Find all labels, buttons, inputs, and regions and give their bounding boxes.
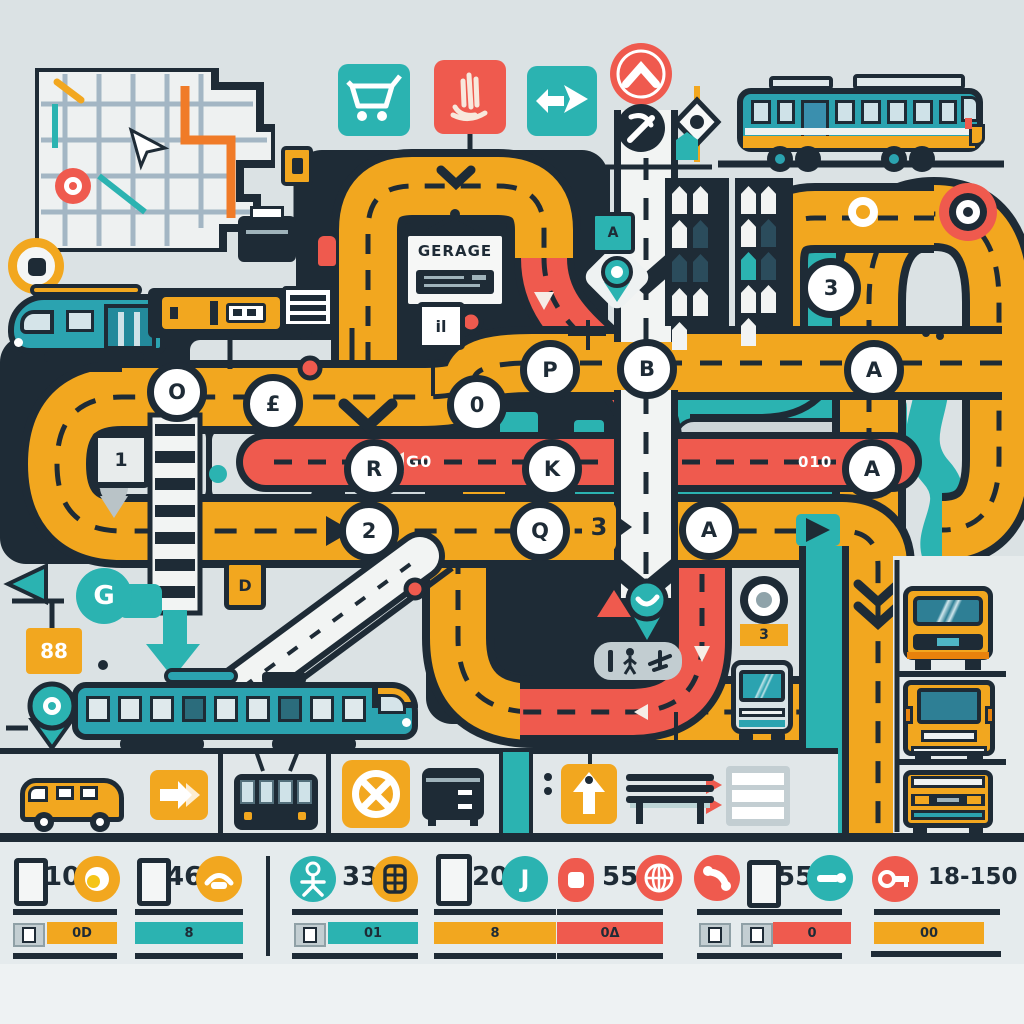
teal-square-text: A [608, 225, 619, 241]
station-marker: B [617, 339, 677, 399]
up-arrow-icon [561, 764, 617, 824]
pedestrian-sign [594, 642, 682, 680]
car-circle-icon [196, 856, 242, 902]
cabinet-icon [422, 768, 484, 826]
station-marker: Q [510, 501, 570, 561]
legend-bar: 8 [135, 922, 243, 944]
route-3-text: 3 [591, 513, 608, 541]
station-marker: A [842, 439, 902, 499]
truck-front [903, 586, 999, 672]
stripe-sign [282, 286, 334, 328]
mini-sign-icon [741, 923, 773, 947]
mini-sign-icon [294, 923, 326, 947]
g-badge: G [76, 568, 132, 624]
bus-pictogram [226, 303, 266, 323]
grid-circle-icon [372, 856, 418, 902]
printer-icon [238, 216, 296, 262]
station-marker: 3 [801, 258, 861, 318]
legend-bar-text: 8 [184, 926, 193, 941]
legend-bar: 00 [874, 922, 984, 944]
station-marker: K [522, 439, 582, 499]
double-arrow-tile [527, 66, 597, 136]
building [735, 178, 793, 326]
double-eight-text: 88 [40, 639, 68, 663]
stop-tag-text: 3 [759, 627, 769, 643]
up-arrow-sign [561, 764, 617, 824]
legend-bar-text: 0Δ [600, 926, 619, 941]
station-marker: 2 [339, 501, 399, 561]
stop-tag: 3 [740, 624, 788, 646]
info-sign-text: il [436, 317, 447, 336]
bench-icon [626, 774, 714, 824]
station-label: 3 [824, 276, 839, 300]
hand-tile [434, 60, 506, 134]
station-label: A [701, 518, 717, 542]
legend-bar: 0 [773, 922, 851, 944]
legend-bar-text: 0D [72, 926, 92, 941]
legend-bar-text: 8 [490, 926, 499, 941]
station-marker: A [679, 500, 739, 560]
station-label: B [639, 357, 655, 381]
shopping-cart-tile [338, 64, 410, 136]
shopping-cart-icon [344, 72, 404, 128]
garage-sign-text: GERAGE [408, 242, 502, 260]
garage-sign-panel [416, 270, 494, 294]
globe-circle-icon [636, 855, 682, 901]
station-label: O [168, 380, 186, 404]
hydrant-icon [318, 236, 336, 266]
crosswalk [146, 415, 200, 678]
right-arrow-sign [150, 770, 208, 820]
dot-circle-icon [74, 856, 120, 902]
teal-square-sign: A [591, 212, 635, 254]
no-entry-sign [342, 760, 410, 828]
hook-glyph: J [521, 865, 530, 893]
bus-front [731, 654, 797, 744]
station-label: 2 [362, 519, 377, 543]
person-circle-icon [290, 856, 336, 902]
double-arrow-icon [534, 81, 590, 121]
truck-front [901, 678, 1001, 764]
station-label: P [542, 358, 557, 382]
legend-bar: 8 [434, 922, 556, 944]
station-label: 0 [470, 393, 485, 417]
legend-bar-text: 0 [807, 926, 816, 941]
key-circle-icon [872, 856, 918, 902]
left-location-pin-icon [30, 684, 74, 748]
target-roundabout-icon [939, 183, 997, 241]
mini-sign-icon [13, 923, 45, 947]
tools-station-icon [617, 104, 665, 152]
phone-outline-icon [14, 858, 48, 906]
station-marker: P [520, 340, 580, 400]
legend-bar-text: 01 [364, 926, 382, 941]
route-flag-sign: 1 [92, 432, 150, 488]
station-label: K [544, 457, 560, 481]
tram-side [72, 660, 422, 750]
pole-sign [281, 146, 313, 186]
station-marker: 0 [447, 375, 507, 435]
station-marker: A [844, 340, 904, 400]
legend-value: 55 [602, 862, 638, 892]
red-road-label: 010 [798, 453, 832, 471]
stop-square-icon [558, 858, 594, 902]
g-badge-text: G [93, 581, 114, 611]
legend-bar: 01 [328, 922, 418, 944]
legend-divider [266, 856, 270, 956]
station-label: R [366, 457, 382, 481]
up-chevron-sign [610, 43, 672, 105]
station-label: Q [531, 519, 549, 543]
van-side [20, 766, 132, 836]
minor-station-icon [848, 197, 878, 227]
d-tag-sign: D [224, 560, 266, 610]
station-label: A [866, 358, 882, 382]
route-3-tag: 3 [582, 508, 616, 546]
teal-left-arrow-icon [8, 566, 46, 602]
key-bar-circle-icon [807, 855, 853, 901]
list-sign [726, 766, 790, 826]
transit-map-illustration: GERAGE il A 1 D 88 G 3 3 G0 010 O £ 0 P … [0, 0, 1024, 1024]
station-label: £ [266, 392, 281, 416]
phone-circle-icon [694, 855, 740, 901]
d-tag-text: D [238, 576, 251, 595]
building [665, 178, 729, 326]
pedestrian-plane-icons [594, 642, 682, 680]
station-marker: £ [243, 374, 303, 434]
ground-line [0, 833, 1024, 842]
mini-sign-icon [699, 923, 731, 947]
van-front [903, 766, 999, 834]
hook-circle-icon: J [502, 856, 548, 902]
phone-outline-icon [436, 854, 472, 906]
bus-side [733, 58, 995, 170]
right-arrow-icon [150, 770, 208, 820]
legend-bar: 0Δ [557, 922, 663, 944]
phone-outline-icon [747, 860, 781, 908]
info-sign: il [417, 302, 465, 350]
legend-bar: 0D [47, 922, 117, 944]
garage-sign: GERAGE [402, 230, 508, 310]
legend-value: 18-150 [928, 864, 1018, 890]
teal-arrow-stem [163, 610, 187, 646]
footer-strip [0, 964, 1024, 1024]
route-flag-text: 1 [114, 449, 127, 471]
station-marker: O [147, 362, 207, 422]
legend-bar-text: 00 [920, 926, 938, 941]
red-road-label: G0 [406, 452, 432, 471]
station-marker: R [344, 439, 404, 499]
hand-icon [441, 67, 499, 127]
trolleybus-front [234, 768, 322, 834]
station-label: A [864, 457, 880, 481]
ring-icon [740, 576, 788, 624]
